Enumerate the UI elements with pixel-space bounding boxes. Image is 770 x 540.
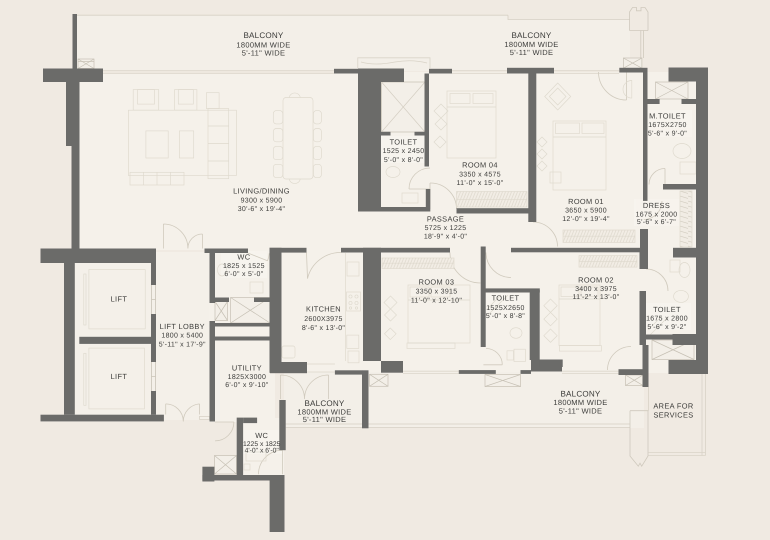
svg-text:M.TOILET: M.TOILET bbox=[649, 112, 686, 121]
svg-text:LIFT: LIFT bbox=[111, 372, 128, 381]
svg-text:1525X2650: 1525X2650 bbox=[486, 305, 525, 312]
svg-text:5'-6" x 9'-0": 5'-6" x 9'-0" bbox=[648, 131, 687, 138]
svg-text:5'-6" x 9'-2": 5'-6" x 9'-2" bbox=[647, 324, 686, 331]
svg-text:LIFT: LIFT bbox=[111, 294, 128, 303]
svg-text:1825X3000: 1825X3000 bbox=[228, 374, 267, 381]
svg-text:TOILET: TOILET bbox=[492, 294, 520, 303]
svg-text:ROOM 01: ROOM 01 bbox=[568, 197, 604, 206]
svg-text:TOILET: TOILET bbox=[653, 305, 681, 314]
svg-text:11'-0" x 15'-0": 11'-0" x 15'-0" bbox=[456, 180, 503, 187]
svg-text:KITCHEN: KITCHEN bbox=[306, 305, 341, 314]
svg-text:BALCONY: BALCONY bbox=[511, 31, 551, 40]
svg-text:BALCONY: BALCONY bbox=[243, 31, 283, 40]
svg-text:5'-11" WIDE: 5'-11" WIDE bbox=[303, 415, 347, 424]
svg-text:3350 x 3915: 3350 x 3915 bbox=[416, 289, 458, 296]
svg-text:SERVICES: SERVICES bbox=[653, 410, 693, 419]
svg-text:UTILITY: UTILITY bbox=[232, 364, 262, 373]
svg-text:3650 x 5900: 3650 x 5900 bbox=[565, 208, 607, 215]
svg-text:5725 x 1225: 5725 x 1225 bbox=[425, 225, 467, 232]
svg-text:30'-6" x 19'-4": 30'-6" x 19'-4" bbox=[238, 206, 286, 213]
svg-text:3400 x 3975: 3400 x 3975 bbox=[575, 286, 617, 293]
svg-text:1800 x 5400: 1800 x 5400 bbox=[161, 333, 203, 340]
svg-text:6'-0" x 5'-0": 6'-0" x 5'-0" bbox=[224, 271, 263, 278]
svg-text:5'-11" WIDE: 5'-11" WIDE bbox=[510, 48, 554, 57]
svg-text:LIVING/DINING: LIVING/DINING bbox=[233, 187, 290, 196]
svg-text:TOILET: TOILET bbox=[390, 138, 418, 147]
svg-text:1675 x 2000: 1675 x 2000 bbox=[636, 212, 678, 219]
svg-text:DRESS: DRESS bbox=[643, 201, 670, 210]
svg-text:5'-11" x 17'-9": 5'-11" x 17'-9" bbox=[159, 342, 206, 349]
svg-text:WC: WC bbox=[237, 252, 250, 261]
svg-text:5'-0" x 8'-8": 5'-0" x 8'-8" bbox=[486, 313, 525, 320]
svg-text:WC: WC bbox=[255, 431, 268, 440]
svg-text:11'-2" x 13'-0": 11'-2" x 13'-0" bbox=[572, 294, 619, 301]
svg-text:LIFT LOBBY: LIFT LOBBY bbox=[160, 322, 205, 331]
svg-text:PASSAGE: PASSAGE bbox=[427, 214, 464, 223]
svg-text:11'-0" x 12'-10": 11'-0" x 12'-10" bbox=[411, 298, 462, 305]
svg-text:6'-0" x 9'-10": 6'-0" x 9'-10" bbox=[225, 382, 269, 389]
svg-text:12'-0" x 19'-4": 12'-0" x 19'-4" bbox=[562, 216, 610, 223]
svg-text:18'-9" x 4'-0": 18'-9" x 4'-0" bbox=[424, 234, 468, 241]
svg-text:8'-6" x 13'-0": 8'-6" x 13'-0" bbox=[302, 325, 346, 332]
svg-text:5'-0" x 8'-0": 5'-0" x 8'-0" bbox=[384, 157, 423, 164]
svg-text:2600X3975: 2600X3975 bbox=[304, 316, 343, 323]
svg-text:5'-6" x 6'-7": 5'-6" x 6'-7" bbox=[637, 219, 676, 226]
svg-text:ROOM 02: ROOM 02 bbox=[578, 276, 614, 285]
svg-text:AREA FOR: AREA FOR bbox=[653, 401, 693, 410]
svg-text:5'-11" WIDE: 5'-11" WIDE bbox=[242, 49, 286, 58]
svg-text:1525 x 2450: 1525 x 2450 bbox=[383, 148, 425, 155]
svg-text:9300 x 5900: 9300 x 5900 bbox=[241, 198, 283, 205]
svg-text:ROOM 04: ROOM 04 bbox=[462, 161, 498, 170]
svg-text:4'-0" x 6'-0": 4'-0" x 6'-0" bbox=[245, 448, 280, 455]
svg-text:ROOM 03: ROOM 03 bbox=[419, 278, 455, 287]
svg-text:1825 x 1525: 1825 x 1525 bbox=[223, 263, 265, 270]
svg-text:1675 x 2800: 1675 x 2800 bbox=[646, 316, 688, 323]
svg-text:5'-11" WIDE: 5'-11" WIDE bbox=[559, 406, 603, 415]
svg-text:3350 x 4575: 3350 x 4575 bbox=[459, 171, 501, 178]
svg-text:1675X2750: 1675X2750 bbox=[648, 122, 687, 129]
